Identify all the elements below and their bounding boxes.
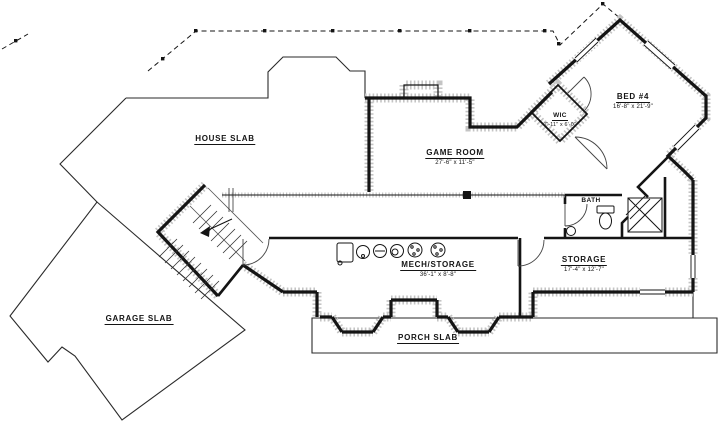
wic-name: WIC	[552, 112, 568, 121]
floor-plan: HOUSE SLAB GARAGE SLAB GAME ROOM 27'-6" …	[0, 0, 725, 431]
sink-icon	[567, 227, 576, 236]
garage-slab-name: GARAGE SLAB	[105, 314, 174, 325]
game-room-name: GAME ROOM	[425, 148, 484, 159]
house-slab-name: HOUSE SLAB	[194, 134, 255, 145]
room-label-garage-slab: GARAGE SLAB	[105, 314, 174, 325]
room-label-bed4: BED #4 16'-8" x 21'-9"	[613, 92, 653, 111]
bed4-name: BED #4	[616, 92, 650, 103]
game-room-dimensions: 27'-6" x 11'-5"	[425, 160, 484, 167]
structural-post	[463, 191, 471, 199]
floor-plan-drawing	[0, 0, 725, 431]
mech-storage-name: MECH/STORAGE	[400, 260, 476, 271]
house-slab-outline	[60, 57, 365, 202]
storage-name: STORAGE	[561, 255, 607, 266]
foundation-wall-hatch	[158, 20, 706, 332]
room-label-storage: STORAGE 17'-4" x 12'-7"	[561, 255, 607, 274]
room-label-house-slab: HOUSE SLAB	[194, 134, 255, 145]
setback-line-dots	[14, 2, 604, 60]
exterior-walls	[158, 20, 706, 332]
garage-slab-outline	[10, 202, 245, 420]
porch-slab-name: PORCH SLAB	[397, 333, 459, 344]
wic-dimensions: 7'-11" x 6'-0"	[544, 122, 576, 128]
dashed-setback-line	[2, 4, 621, 71]
bed4-dimensions: 16'-8" x 21'-9"	[613, 104, 653, 111]
room-label-wic: WIC 7'-11" x 6'-0"	[544, 112, 576, 129]
toilet-icon	[597, 206, 614, 229]
room-label-mech-storage: MECH/STORAGE 36'-1" x 8'-8"	[400, 260, 476, 279]
shower-icon	[628, 198, 662, 232]
room-label-game-room: GAME ROOM 27'-6" x 11'-5"	[425, 148, 484, 167]
storage-dimensions: 17'-4" x 12'-7"	[561, 267, 607, 274]
room-label-bath: BATH	[580, 197, 601, 205]
mech-storage-dimensions: 36'-1" x 8'-8"	[400, 272, 476, 279]
stairs	[159, 188, 263, 299]
stair-direction-arrow	[200, 219, 232, 237]
porch-slab-outline	[312, 292, 717, 353]
room-label-porch-slab: PORCH SLAB	[397, 333, 459, 344]
bath-name: BATH	[580, 197, 601, 205]
